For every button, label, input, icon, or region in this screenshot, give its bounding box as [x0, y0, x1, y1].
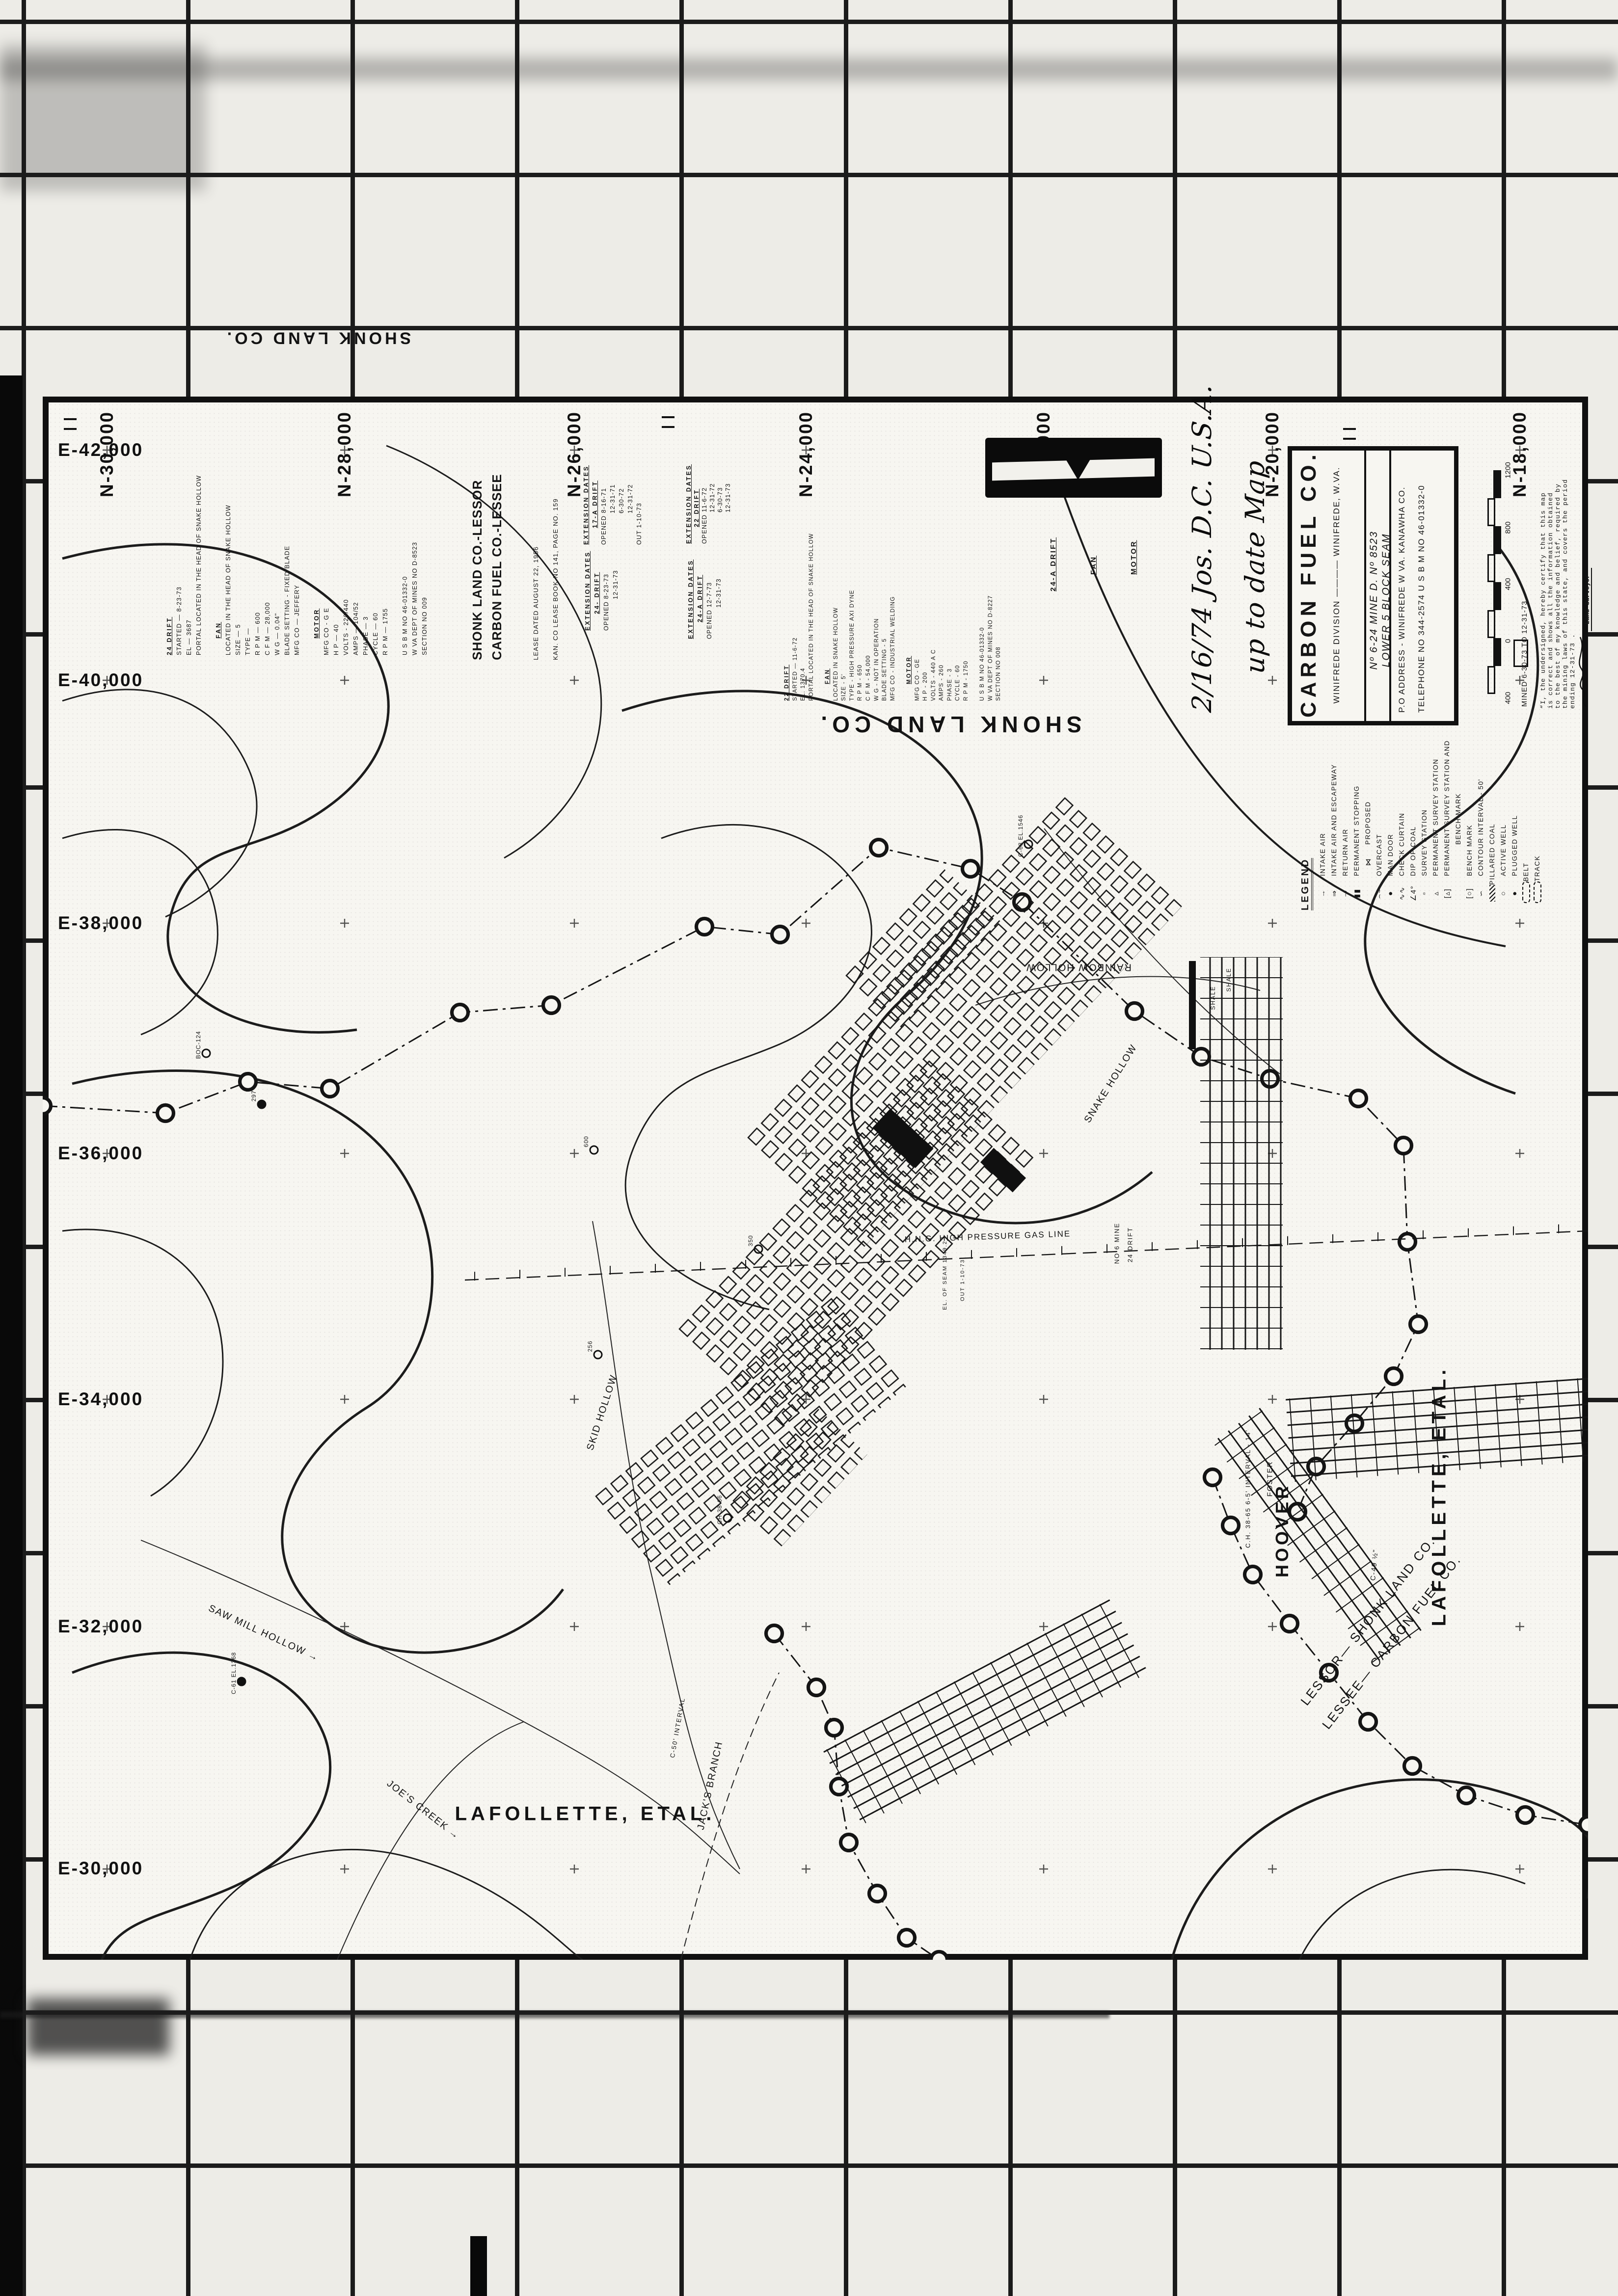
block-ext22-line-4: 6-30-73: [716, 458, 724, 512]
block-ext24: EXTENSION DATES24- DRIFTOPENED 8-23-7312…: [583, 545, 620, 631]
belt-icon: [1522, 881, 1530, 903]
block-drift22-line-15: MOTOR: [905, 560, 914, 684]
grid-e-label: E-34,000: [58, 1389, 143, 1410]
block-ext22-line-3: 12-31-72: [708, 458, 716, 512]
company-name: CARBON FUEL CO.: [1296, 453, 1321, 718]
block-ext22-line-2: OPENED 11-6-72: [701, 458, 708, 544]
scale-bar-segment-2: [1493, 526, 1501, 554]
certification-line-3: the mining laws of this state, and cover…: [1562, 448, 1569, 709]
po-address: P.O ADDRESS - WINIFREDE W VA. KANAWHA CO…: [1397, 465, 1407, 713]
surveyor-title: Land Surveyor: [1584, 568, 1592, 631]
block-drift24-line-15: MOTOR: [312, 476, 322, 639]
grid-n-label: N-18,000: [1510, 411, 1530, 497]
block-drift24-line-22: R P M — 1755: [380, 476, 390, 655]
block-drift22-line-12: BLADE SETTING - 5: [881, 560, 889, 701]
mined-period: MINED 6-30-73 TO 12-31-73: [1521, 590, 1529, 707]
block-drift22: 22 DRIFTSTARTED — 11-6-72EL. 1370.4PORTA…: [783, 560, 1003, 701]
dot-icon: ●: [1386, 876, 1395, 910]
block-drift22-line-18: VOLTS - 440 A C: [930, 560, 938, 701]
grid-e-label: E-32,000: [58, 1616, 143, 1637]
block-ext17a: EXTENSION DATES17-A DRIFTOPENED 8-16-711…: [582, 459, 644, 545]
block-drift24a-line-4: MOTOR: [1124, 515, 1144, 575]
legend-item-label: PERMANENT SURVEY STATION: [1432, 758, 1439, 876]
block-drift22-line-16: MFG CO - GE: [914, 560, 922, 701]
handwritten-received-note: 2/16/74 Jos. D.C. U.S.A. up to date Map: [1176, 383, 1282, 721]
block-ext22: EXTENSION DATES22 DRIFTOPENED 11-6-7212-…: [685, 458, 732, 544]
legend-item-5: ⌢⌣OVERCAST: [1374, 730, 1385, 910]
circboxed-icon: [○]: [1465, 876, 1474, 910]
match-mark: [662, 416, 674, 428]
hatch-icon: [1489, 885, 1495, 902]
legend-item-label: INTAKE AIR AND ESCAPEWAY: [1330, 764, 1338, 876]
legend-item-13: [○]BENCH MARK: [1464, 730, 1475, 910]
legend-item-14: ∽CONTOUR INTERVAL - 50': [1475, 730, 1486, 910]
block-drift24-line-11: W G — 0.04": [272, 476, 282, 655]
block-drift24-line-20: PHASE — 3: [361, 476, 371, 655]
block-drift22-line-8: TYPE - HIGH PRESSURE AXI DYNE: [848, 560, 857, 701]
block-ext22-line-1: 22 DRIFT: [693, 458, 701, 527]
legend-item-label: SURVEY STATION: [1421, 809, 1428, 876]
legend-item-3: ▮▮PERMANENT STOPPING: [1351, 730, 1362, 910]
block-drift22-line-13: MFG CO - INDUSTRIAL WELDING: [889, 560, 897, 701]
block-ext24-line-3: 12-31-73: [611, 545, 620, 599]
certification-signature-row: Land Surveyor: [1578, 448, 1592, 709]
arrow2-icon: ⇒: [1330, 876, 1339, 910]
legend-item-12: BENCH MARK: [1453, 730, 1464, 879]
scan-mark-bottom: [470, 2236, 487, 2296]
block-drift22-line-1: STARTED — 11-6-72: [791, 560, 800, 701]
bowtie-icon: ⋈: [1364, 845, 1373, 879]
block-drift24-line-24: U S B M NO 46-01332-0: [400, 476, 410, 655]
scale-bar-number-0: 1200: [1504, 462, 1512, 478]
block-ext17a-line-2: OPENED 8-16-71: [599, 459, 608, 545]
block-drift24-line-13: MFG CO — JEFFERY: [292, 476, 302, 655]
block-drift22-line-20: PHASE - 3: [946, 560, 954, 701]
legend-item-8: ∠4°DIP OF COAL: [1407, 730, 1419, 910]
block-drift24-line-10: C F M — 28,000: [263, 476, 272, 655]
scale-bar-segment-1: [1487, 498, 1495, 526]
legend-item-0: →INTAKE AIR: [1317, 730, 1328, 910]
block-drift22-line-17: H P - 200: [921, 560, 930, 701]
grid-e-label: E-42,000: [58, 440, 143, 460]
legend-item-15: PILLARED COAL: [1486, 730, 1498, 910]
block-ext17a-line-4: 6-30-72: [617, 459, 626, 513]
block-drift22-line-25: W VA DEPT OF MINES NO D-8227: [987, 560, 995, 701]
block-drift22-line-5: FAN: [824, 560, 832, 684]
curtain-icon: ∿∿: [1398, 876, 1406, 910]
certification-block: “I, the undersigned, hereby certify that…: [1539, 448, 1592, 709]
block-drift22-line-24: U S B M NO 46-01332-0: [978, 560, 987, 701]
scale-bar-number-4: 400: [1504, 692, 1512, 704]
arrowd-icon: ⇢: [1341, 876, 1350, 910]
legend-item-label: CONTOUR INTERVAL - 50': [1477, 778, 1484, 876]
block-ext24-line-2: OPENED 8-23-73: [602, 545, 611, 631]
block-ext24a-line-2: OPENED 12-7-73: [705, 548, 714, 639]
scanned-mine-map-page: { "page":{"title":"Carbon Fuel Co. No 6-…: [0, 0, 1618, 2296]
block-drift24a-line-2: FAN: [1083, 515, 1104, 575]
block-drift24-line-26: SECTION NO 009: [420, 476, 430, 655]
scale-bar-number-2: 400: [1504, 578, 1512, 590]
block-drift24-line-18: VOLTS - 220/440: [341, 476, 351, 655]
scale-bar-segment-3: [1487, 554, 1495, 582]
legend-item-label: TRACK: [1534, 855, 1541, 881]
block-drift24-line-1: STARTED — 8-23-73: [174, 476, 184, 655]
circ-icon: ○: [1499, 876, 1508, 910]
triboxed-icon: [▵]: [1443, 876, 1452, 910]
block-ext24a-line-1: 24-A DRIFT: [696, 548, 705, 622]
block-drift24-line-2: EL — 3687: [184, 476, 194, 655]
certification-line-0: “I, the undersigned, hereby certify that…: [1539, 448, 1547, 709]
scale-bar-segment-5: [1487, 610, 1495, 638]
block-drift22-line-2: EL. 1370.4: [799, 560, 808, 701]
telephone-usbm: TELEPHONE NO 344-2574 U S B M NO 46-0133…: [1417, 465, 1427, 713]
legend-item-1: ⇒INTAKE AIR AND ESCAPEWAY: [1328, 730, 1340, 910]
dip-icon: ∠4°: [1409, 876, 1418, 910]
title-block-divider: [1364, 451, 1366, 721]
scan-smudge-bottomband: [0, 2011, 1109, 2018]
legend-item-label: RETURN AIR: [1342, 828, 1349, 876]
received-note-line2: up to date Map: [1229, 388, 1282, 676]
legend-item-18: BELT: [1520, 730, 1532, 910]
block-drift24-line-16: MFG CO - G E: [322, 476, 331, 655]
scale-bar-segment-7: [1487, 666, 1495, 694]
block-drift22-line-11: W G - NOT IN OPERATION: [873, 560, 881, 701]
surveyor-signature: [1578, 635, 1589, 709]
block-drift24-line-6: LOCATED IN THE HEAD OF SNAKE HOLLOW: [223, 476, 233, 655]
legend-item-11: [▵]PERMANENT SURVEY STATION AND: [1441, 730, 1453, 910]
block-drift24-line-5: FAN: [214, 476, 223, 639]
scan-smudge-topleft: [0, 44, 206, 191]
block-drift24-line-7: SIZE — 5: [233, 476, 243, 655]
title-address-band: P.O ADDRESS - WINIFREDE W VA. KANAWHA CO…: [1397, 465, 1427, 713]
legend-item-label: PERMANENT STOPPING: [1353, 785, 1360, 876]
block-drift24-line-9: R P M — 600: [253, 476, 263, 655]
block-drift22-line-21: CYCLE - 60: [954, 560, 962, 701]
block-drift24-line-19: AMPS — 104/52: [351, 476, 361, 655]
block-drift24-line-25: W VA DEPT OF MINES NO D-8523: [410, 476, 420, 655]
scale-bar-segment-6: [1493, 638, 1501, 666]
block-drift22-line-3: PORTAL LOCATED IN THE HEAD OF SNAKE HOLL…: [808, 560, 816, 701]
legend-item-19: TRACK: [1532, 730, 1543, 910]
division-line: WINIFREDE DIVISION ———— WINIFREDE, W.VA.: [1332, 453, 1342, 718]
stamp-arrow-mark: [1059, 449, 1097, 480]
legend-item-7: ∿∿CHECK CURTAIN: [1396, 730, 1407, 910]
block-ext22-line-5: 12-31-73: [724, 458, 732, 512]
block-drift24: 24 DRIFTSTARTED — 8-23-73EL — 3687PORTAL…: [164, 476, 430, 655]
scan-left-edge: [0, 375, 23, 2296]
block-ext24a-line-3: 12-31-73: [714, 548, 724, 608]
legend: LEGEND→INTAKE AIR⇒INTAKE AIR AND ESCAPEW…: [1300, 730, 1543, 910]
block-ext17a-line-5: 12-31-72: [626, 459, 635, 513]
block-ext17a-line-0: EXTENSION DATES: [582, 459, 591, 545]
block-drift22-line-10: C F M - 54,000: [864, 560, 873, 701]
legend-item-label: BELT: [1522, 862, 1530, 881]
mine-name: Nº 6-24 MINE D. Nº 8523: [1368, 495, 1380, 706]
mined-period-text: MINED 6-30-73 TO 12-31-73: [1521, 590, 1529, 707]
contour-icon: ∽: [1477, 876, 1485, 910]
seam-name: LOWER 5 BLOCK SEAM: [1380, 495, 1392, 706]
scan-smudge-bottomleft: [27, 1999, 169, 2055]
match-mark: [1343, 428, 1356, 440]
legend-item-9: ▫SURVEY STATION: [1419, 730, 1430, 910]
overcast-icon: ⌢⌣: [1375, 876, 1383, 910]
received-note-line1: 2/16/74 Jos. D.C. U.S.A.: [1176, 383, 1229, 715]
legend-item-label: PILLARED COAL: [1488, 824, 1496, 885]
title-mine-band: Nº 6-24 MINE D. Nº 8523 LOWER 5 BLOCK SE…: [1368, 495, 1392, 706]
certification-line-4: ending 12-31-73 .: [1569, 448, 1576, 709]
title-company-band: CARBON FUEL CO. WINIFREDE DIVISION ———— …: [1296, 453, 1342, 718]
grid-e-label: E-40,000: [58, 670, 143, 691]
block-drift22-line-9: R P M - 650: [856, 560, 864, 701]
legend-item-label: PROPOSED: [1364, 801, 1372, 845]
legend-item-label: DIP OF COAL: [1409, 826, 1417, 876]
legend-item-label: PLUGGED WELL: [1511, 815, 1518, 876]
grid-n-label: N-24,000: [796, 411, 816, 497]
scale-bar-number-3: 0: [1504, 639, 1512, 643]
block-ext17a-line-6: OUT 1-10-73: [635, 459, 644, 545]
block-drift24a-line-0: 24-A DRIFT: [1043, 515, 1063, 591]
block-ext17a-line-3: 12-31-71: [608, 459, 617, 513]
legend-item-label: INTAKE AIR: [1319, 833, 1326, 876]
sq-icon: ▫: [1420, 876, 1429, 910]
block-drift24-line-21: CYCLE — 60: [371, 476, 380, 655]
legend-item-4: ⋈PROPOSED: [1362, 730, 1374, 879]
block-lease-line-0: SHONK LAND CO.-LESSOR: [467, 486, 487, 660]
block-drift22-line-22: R P M - 1750: [962, 560, 971, 701]
legend-item-17: ●PLUGGED WELL: [1509, 730, 1520, 910]
block-ext22-line-0: EXTENSION DATES: [685, 458, 693, 544]
block-drift24-line-8: TYPE —: [243, 476, 253, 655]
block-lease-line-1: CARBON FUEL CO.-LESSEE: [487, 486, 507, 660]
block-ext24-line-0: EXTENSION DATES: [583, 545, 593, 631]
block-ext24a: EXTENSION DATES24-A DRIFTOPENED 12-7-731…: [686, 548, 724, 639]
grid-e-label: E-30,000: [58, 1858, 143, 1879]
certification-lines: “I, the undersigned, hereby certify that…: [1539, 448, 1576, 709]
block-lease-line-4: KAN. CO LEASE BOOK NO 141, PAGE NO. 159: [546, 486, 566, 660]
block-ext17a-line-1: 17-A DRIFT: [591, 459, 599, 528]
block-ext24a-line-0: EXTENSION DATES: [686, 548, 696, 639]
grid-e-label: E-38,000: [58, 913, 143, 934]
tri-icon: ▵: [1431, 876, 1440, 910]
legend-title: LEGEND: [1300, 858, 1313, 910]
block-drift22-line-7: SIZE - 5': [840, 560, 848, 701]
block-drift24-line-12: BLADE SETTING - FIXED BLADE: [282, 476, 292, 655]
legend-item-label: BENCH MARK: [1466, 825, 1473, 876]
block-drift22-line-0: 22 DRIFT: [783, 560, 791, 701]
block-drift24-line-17: H P — 40: [331, 476, 341, 655]
block-drift22-line-6: LOCATED IN SNAKE HOLLOW: [832, 560, 840, 701]
certification-line-2: to the best of my knowledge and belief, …: [1554, 448, 1562, 709]
legend-item-label: BENCH MARK: [1455, 793, 1462, 845]
stamp-blob: [985, 438, 1162, 498]
legend-item-label: ACTIVE WELL: [1500, 824, 1507, 876]
scale-bar-segment-0: [1493, 470, 1501, 498]
legend-item-label: MAN DOOR: [1387, 834, 1394, 876]
block-drift24a: 24-A DRIFT-FAN-MOTOR: [1043, 515, 1144, 591]
legend-item-label: CHECK CURTAIN: [1398, 813, 1405, 876]
block-drift22-line-19: AMPS - 260: [938, 560, 946, 701]
legend-item-6: ●MAN DOOR: [1385, 730, 1396, 910]
block-drift24-line-3: PORTAL LOCATED IN THE HEAD OF SNAKE HOLL…: [194, 476, 204, 655]
legend-item-10: ▵PERMANENT SURVEY STATION: [1430, 730, 1441, 910]
block-drift24-line-0: 24 DRIFT: [164, 476, 174, 655]
dot-icon: ●: [1510, 876, 1519, 910]
certification-line-1: is correct and shows all the information…: [1547, 448, 1554, 709]
scan-smudge-top: [0, 58, 1618, 80]
arrow-icon: →: [1319, 876, 1327, 910]
block-lease-line-3: LEASE DATED AUGUST 22, 1956: [526, 486, 546, 660]
track-icon: [1534, 881, 1541, 903]
grid-e-label: E-36,000: [58, 1143, 143, 1164]
legend-item-16: ○ACTIVE WELL: [1498, 730, 1509, 910]
legend-item-label: PERMANENT SURVEY STATION AND: [1443, 740, 1451, 876]
legend-item-2: ⇢RETURN AIR: [1340, 730, 1351, 910]
stop-icon: ▮▮: [1352, 876, 1361, 910]
block-drift22-line-26: SECTION NO 008: [995, 560, 1003, 701]
match-mark: [64, 418, 77, 430]
block-ext24-line-1: 24- DRIFT: [593, 545, 602, 614]
block-lease: SHONK LAND CO.-LESSORCARBON FUEL CO.-LES…: [467, 486, 566, 660]
scale-bar-segment-4: [1493, 582, 1501, 610]
legend-item-label: OVERCAST: [1375, 834, 1383, 876]
scale-bar-number-1: 800: [1504, 521, 1512, 534]
